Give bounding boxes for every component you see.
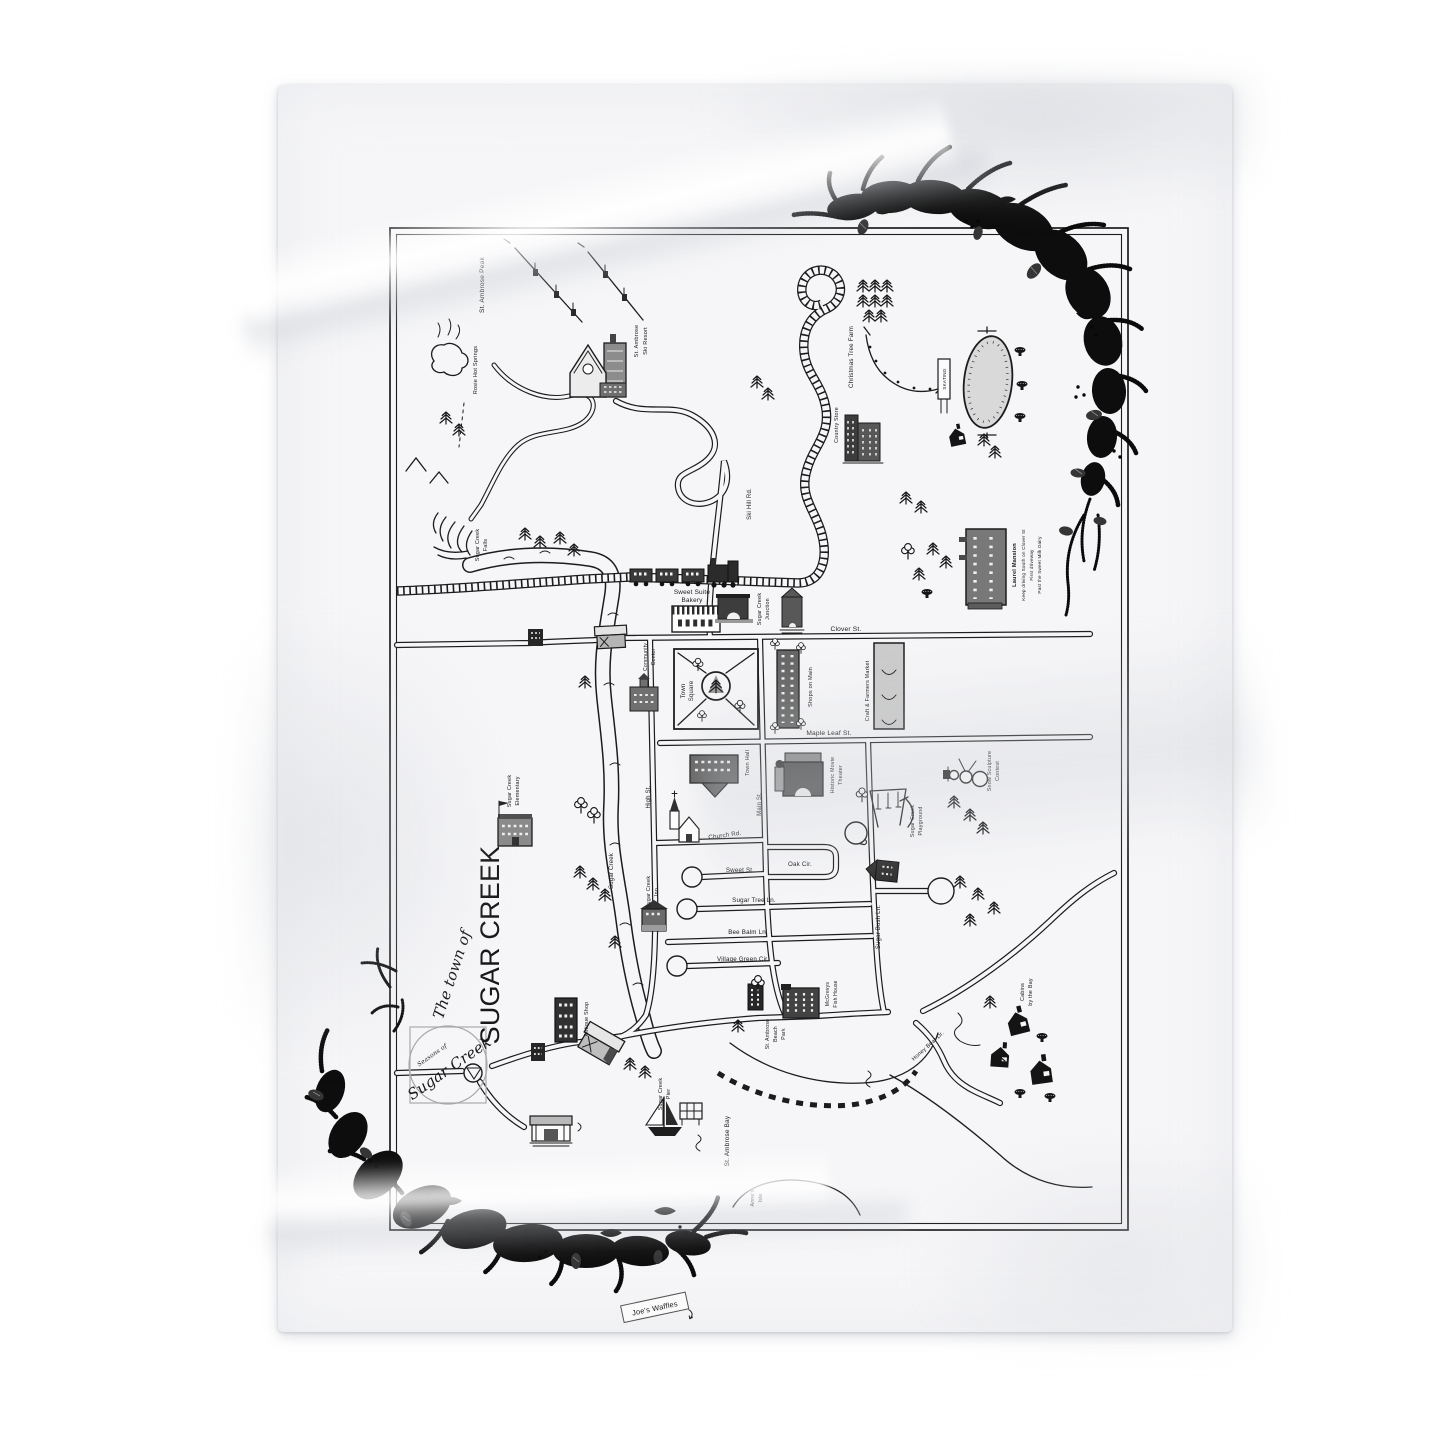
- label-community-center-1: Community: [643, 643, 649, 671]
- label-skating: SKATING: [942, 368, 947, 389]
- small-shop-village-green: [748, 984, 763, 1010]
- st-ambrose-peak-area: [406, 239, 643, 483]
- label-community-center-2: Center: [651, 649, 657, 666]
- label-bee-balm-ln: Bee Balm Ln.: [728, 929, 768, 936]
- label-town-square-2: Square: [689, 680, 695, 701]
- label-playground-2: Playground: [918, 806, 924, 835]
- label-laurel-1: Laurel Mansion: [1012, 543, 1018, 587]
- label-ski-hill-rd: Ski Hill Rd.: [747, 488, 753, 520]
- label-cabins-2: by the Bay: [1028, 978, 1034, 1006]
- clover-covered-bridge: [594, 625, 627, 649]
- sugar-creek-falls: [433, 513, 472, 559]
- small-dark-shop: [531, 1043, 545, 1061]
- label-sweet-suite-2: Bakery: [681, 597, 703, 604]
- mcgrevys-fish-house: [781, 984, 819, 1018]
- label-falls-2: Falls: [483, 539, 489, 551]
- label-christmas-tree-farm: Christmas Tree Farm: [848, 326, 855, 388]
- label-junction-1: Sugar Creek: [757, 593, 763, 626]
- sugar-creek-inn: [640, 900, 668, 931]
- label-st-ambrose-bay: St. Ambrose Bay: [724, 1115, 731, 1166]
- label-sugar-bush-ln: Sugar Bush Ln.: [876, 905, 882, 949]
- country-store: [843, 415, 883, 463]
- boardwalk: [718, 1071, 916, 1106]
- sugar-creek-junction-station: [715, 594, 753, 623]
- craft-farmers-market: [874, 643, 904, 729]
- historic-movie-theater: [775, 753, 823, 796]
- snowman: [943, 759, 988, 787]
- label-pier-1: Sugar Creek: [658, 1078, 664, 1111]
- label-st-ambrose-peak: St. Ambrose Peak: [479, 257, 486, 313]
- blanket-product: Seasons of Sugar Creek The town of SUGAR…: [278, 85, 1232, 1332]
- label-beach-park-1: St. Ambrose: [765, 1019, 771, 1049]
- map-title-script: The town of: [429, 926, 475, 1022]
- label-craft-farmers-market: Craft & Farmers Market: [865, 660, 871, 721]
- skating-rink: [938, 327, 1028, 447]
- label-elementary-2: Elementary: [515, 776, 521, 805]
- label-junction-2: Junction: [765, 598, 771, 620]
- label-playground-1: Sugar Creek: [910, 805, 916, 838]
- label-beach-park-2: Beach: [773, 1026, 779, 1042]
- label-rosie-hot-springs: Rosie Hot Springs: [473, 346, 479, 394]
- label-town-hall: Town Hall: [745, 750, 751, 776]
- label-clover-st: Clover St.: [831, 626, 862, 633]
- label-creek: Sugar Creek: [609, 852, 615, 889]
- label-laurel-4: Past the Sweet Milk Dairy: [1037, 536, 1042, 594]
- label-cabins-1: Cabins: [1020, 983, 1026, 1001]
- label-maple-leaf-st: Maple Leaf St.: [806, 730, 851, 737]
- label-high-st: High St.: [646, 785, 652, 808]
- cabins-by-the-bay: [984, 996, 1056, 1102]
- label-shops-on-main: Shops on Main: [808, 667, 814, 707]
- shops-on-main: [771, 639, 806, 734]
- label-inn-2: Inn: [654, 888, 660, 896]
- chapel-north: [780, 588, 804, 633]
- sugar-creek-map: Seasons of Sugar Creek The town of SUGAR…: [278, 85, 1232, 1332]
- pier-sailboat: [646, 1097, 702, 1136]
- ski-lodge: [570, 334, 626, 397]
- sweet-suite-bakery: [672, 606, 720, 632]
- label-annes-isle-2: Isle: [758, 1194, 764, 1203]
- map-title-main: SUGAR CREEK: [475, 846, 505, 1045]
- label-falls-1: Sugar Creek: [475, 529, 481, 562]
- bay-pavilion: [530, 1116, 572, 1146]
- sugar-creek-elementary: [498, 801, 532, 846]
- label-movie-theater-1: Historic Movie: [830, 757, 836, 794]
- laurel-mansion: [902, 529, 1006, 609]
- label-annes-isle-1: Anne's: [750, 1189, 756, 1206]
- label-oak-cir: Oak Cir.: [788, 861, 812, 868]
- label-main-st: Main St.: [757, 792, 763, 816]
- town-hall: [690, 755, 738, 797]
- label-snow-1: Snow Sculpture: [987, 751, 993, 792]
- label-pier-2: Pier: [666, 1089, 672, 1099]
- label-town-square-1: Town: [681, 684, 687, 699]
- label-movie-theater-2: Theater: [838, 765, 844, 785]
- label-beach-park-3: Park: [781, 1028, 787, 1040]
- care-tag: Joe's Waffles: [621, 1292, 693, 1332]
- label-village-green-cir: Village Green Cir.: [717, 956, 769, 963]
- playground: [856, 788, 913, 827]
- label-elementary-1: Sugar Creek: [507, 775, 513, 808]
- christmas-tree-farm: [857, 280, 942, 393]
- label-country-store: Country Store: [834, 407, 840, 443]
- label-sugar-tree-ln: Sugar Tree Ln.: [732, 897, 776, 904]
- ski-lifts: [504, 239, 643, 322]
- label-antique-shop: Antique Shop: [584, 1002, 590, 1037]
- label-laurel-2: Keep driving South on Clover St: [1021, 529, 1026, 601]
- label-inn-1: Sugar Creek: [646, 876, 652, 909]
- label-ski-resort-1: St. Ambrose: [634, 325, 640, 358]
- church: [670, 791, 699, 842]
- label-snow-2: Contest: [995, 761, 1001, 781]
- antique-shop: [555, 998, 577, 1042]
- label-mcgrevys-1: McGrevys: [825, 982, 831, 1006]
- label-sweet-suite-1: Sweet Suite: [674, 589, 711, 596]
- label-mcgrevys-2: Fish House: [833, 980, 839, 1007]
- label-sweet-st: Sweet St.: [726, 867, 754, 874]
- label-ski-resort-2: Ski Resort: [643, 327, 649, 355]
- label-laurel-3: First driveway: [1029, 549, 1034, 581]
- warming-hut: [947, 423, 966, 447]
